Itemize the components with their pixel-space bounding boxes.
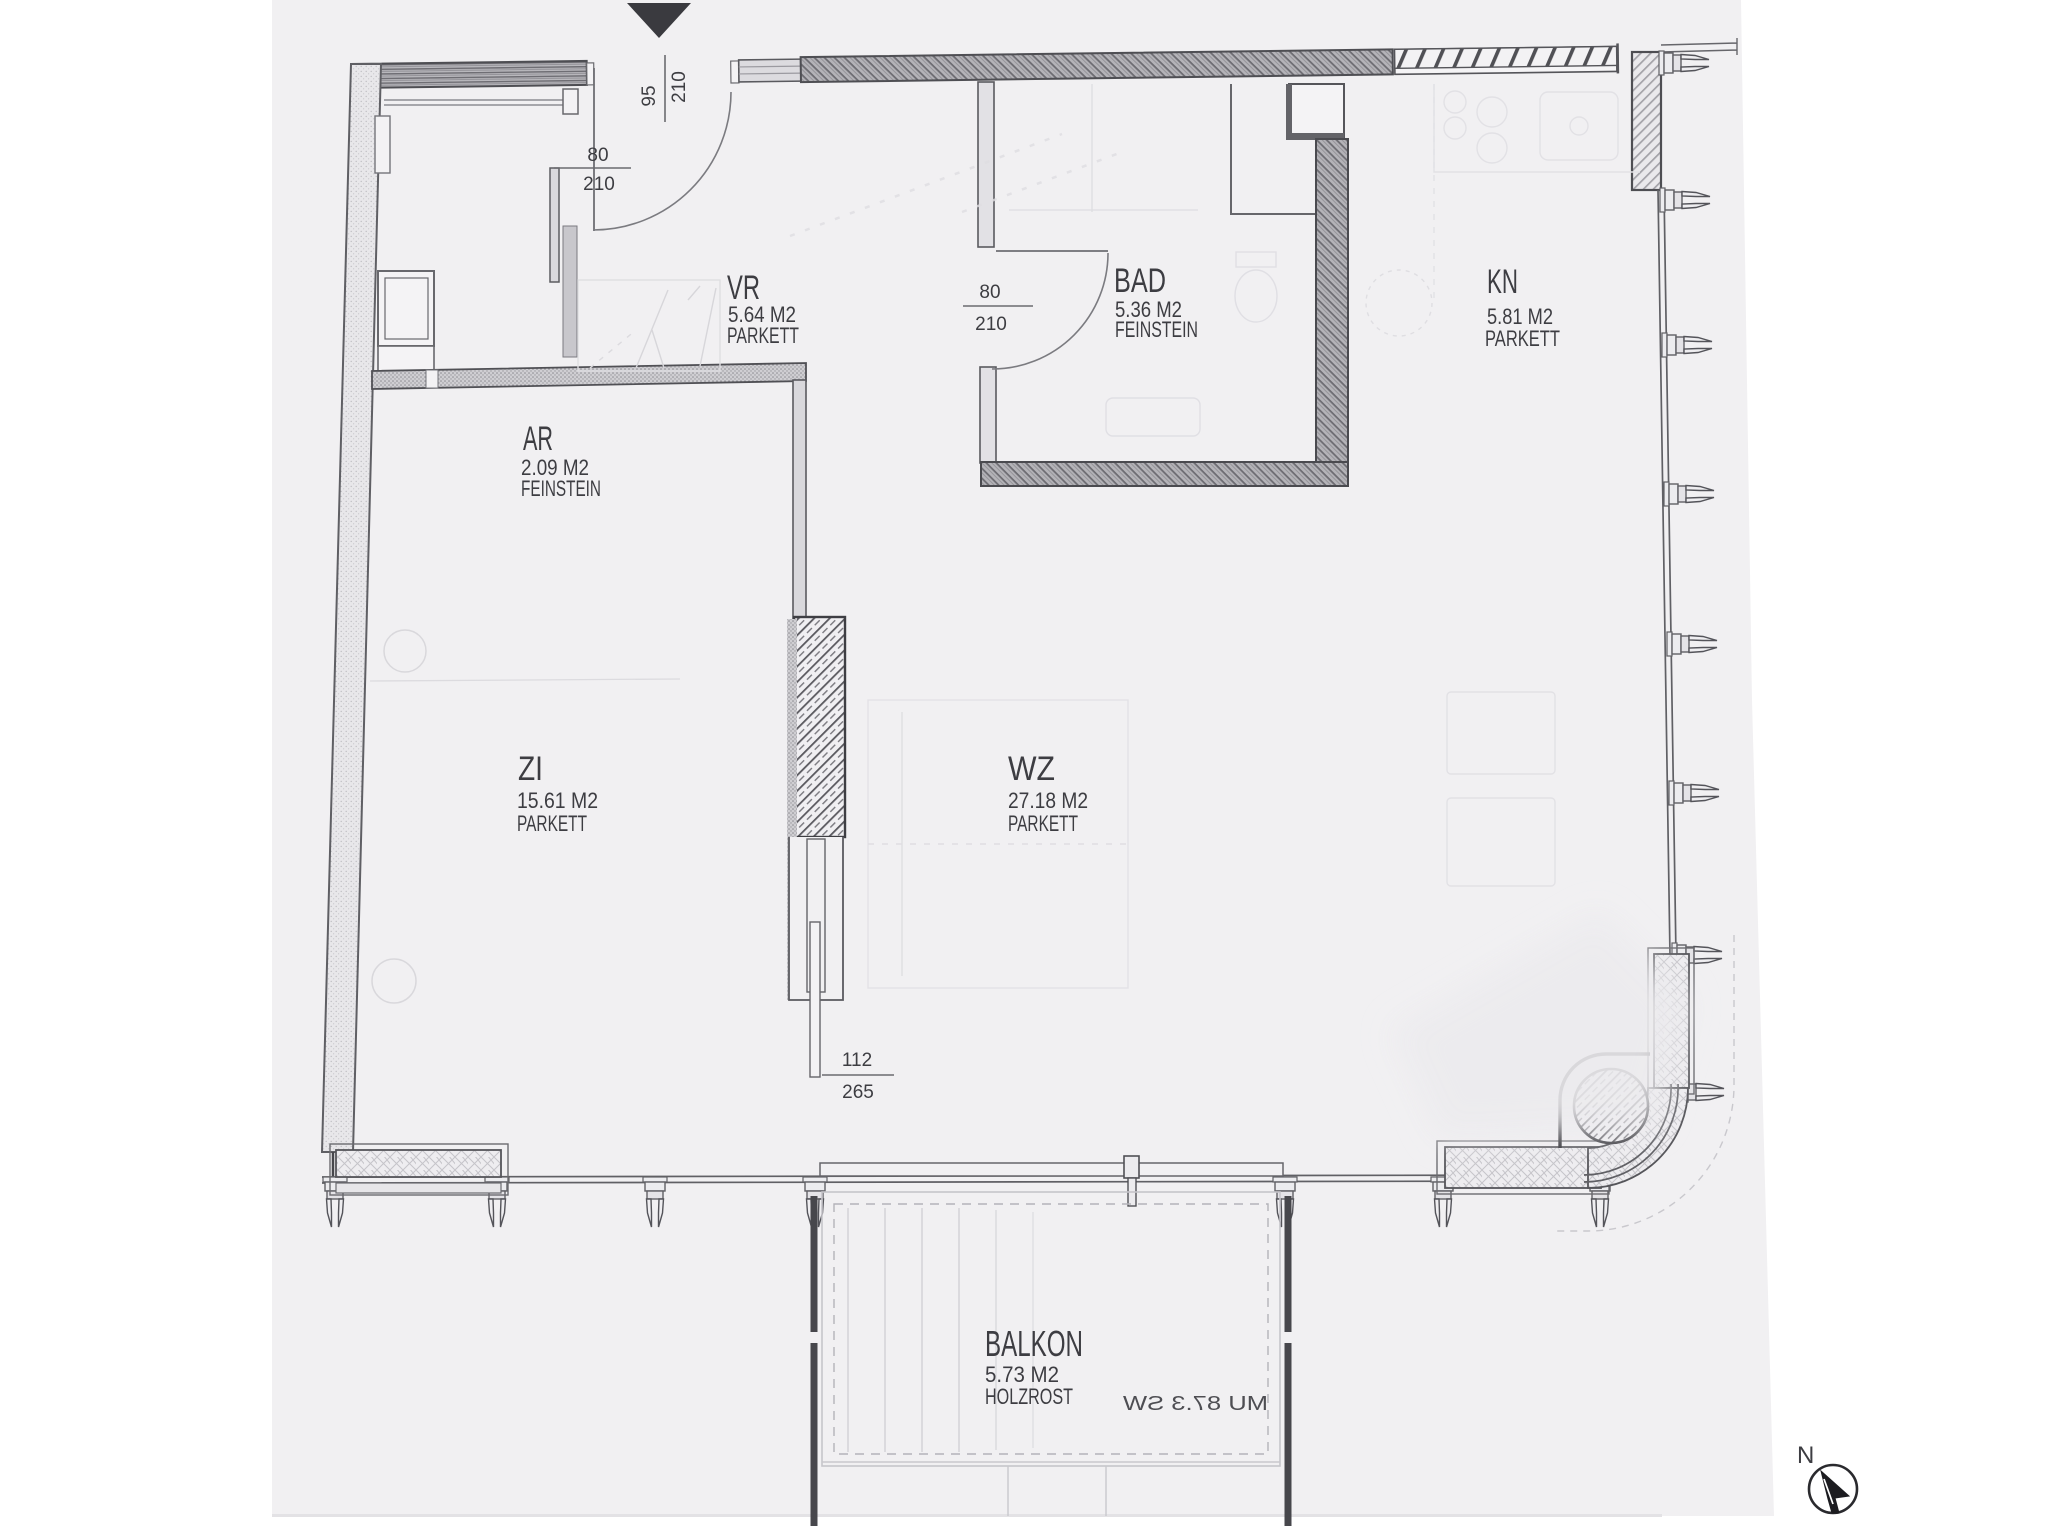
svg-text:BAD: BAD [1114, 262, 1166, 300]
svg-text:210: 210 [975, 314, 1007, 335]
svg-text:ZI: ZI [518, 750, 543, 788]
svg-text:PARKETT: PARKETT [727, 323, 799, 348]
svg-text:15.61 M2: 15.61 M2 [517, 788, 598, 813]
svg-text:112: 112 [842, 1050, 872, 1071]
svg-text:WZ: WZ [1008, 750, 1055, 788]
svg-text:95: 95 [639, 85, 660, 106]
svg-text:HOLZROST: HOLZROST [985, 1384, 1073, 1409]
svg-text:PARKETT: PARKETT [517, 811, 587, 836]
svg-text:PARKETT: PARKETT [1485, 326, 1560, 351]
svg-text:PARKETT: PARKETT [1008, 811, 1078, 836]
svg-text:AR: AR [523, 420, 553, 458]
svg-text:FEINSTEIN: FEINSTEIN [521, 476, 601, 501]
svg-text:MU 87.3 SW: MU 87.3 SW [1123, 1393, 1268, 1415]
svg-text:210: 210 [669, 71, 690, 103]
svg-text:N: N [1797, 1442, 1814, 1469]
svg-text:80: 80 [979, 282, 1000, 303]
svg-text:BALKON: BALKON [985, 1323, 1083, 1364]
svg-text:27.18 M2: 27.18 M2 [1008, 788, 1088, 813]
svg-text:80: 80 [587, 145, 608, 166]
svg-text:KN: KN [1487, 263, 1518, 301]
svg-text:FEINSTEIN: FEINSTEIN [1115, 317, 1198, 342]
svg-text:265: 265 [842, 1082, 874, 1103]
svg-text:210: 210 [583, 174, 615, 195]
